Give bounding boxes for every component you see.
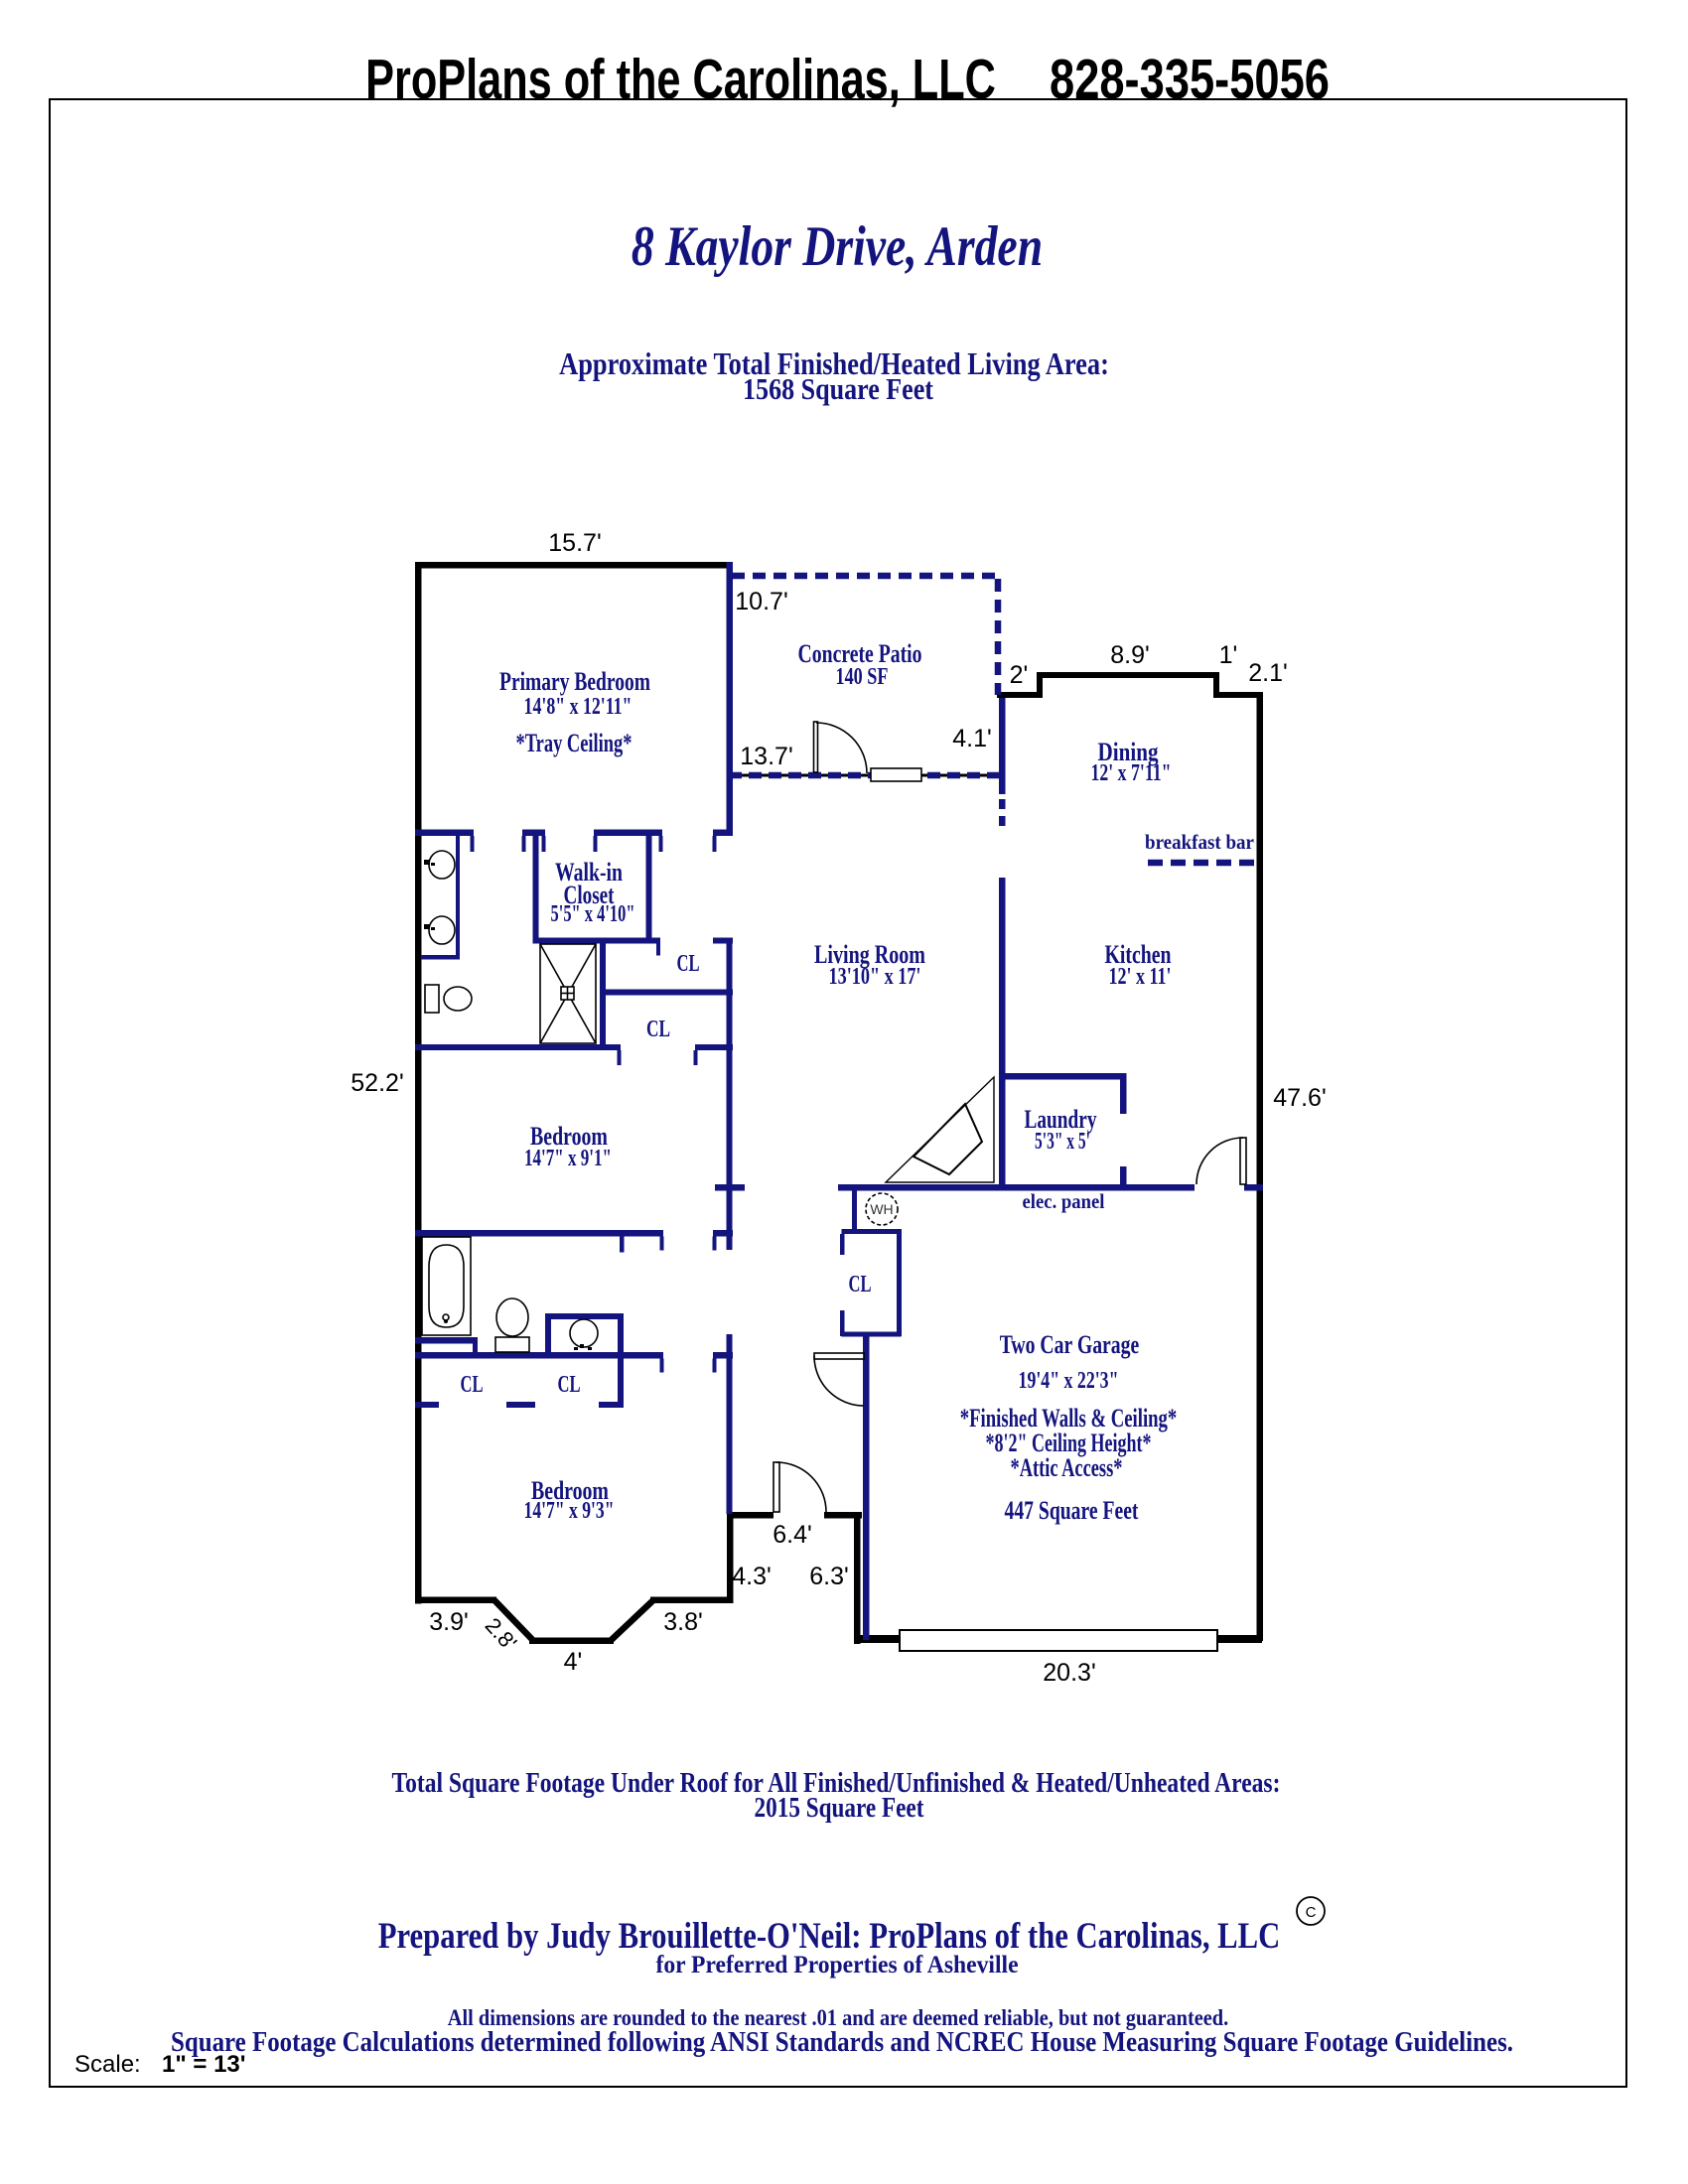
svg-text:52.2': 52.2' (351, 1069, 403, 1097)
svg-text:Scale:: Scale: (74, 2051, 141, 2078)
svg-text:12' x 7'11": 12' x 7'11" (1091, 758, 1172, 785)
svg-text:Two Car Garage: Two Car Garage (1000, 1329, 1140, 1358)
svg-text:Primary Bedroom: Primary Bedroom (499, 667, 650, 695)
svg-text:breakfast bar: breakfast bar (1145, 831, 1254, 854)
svg-text:15.7': 15.7' (548, 529, 601, 557)
svg-text:47.6': 47.6' (1273, 1084, 1326, 1112)
svg-text:10.7': 10.7' (735, 588, 787, 615)
svg-text:8.9': 8.9' (1110, 641, 1150, 669)
svg-text:2.1': 2.1' (1248, 659, 1288, 687)
svg-text:3.8': 3.8' (663, 1608, 703, 1636)
svg-text:for Preferred Properties of As: for Preferred Properties of Asheville (655, 1951, 1018, 1979)
svg-text:1568 Square Feet: 1568 Square Feet (743, 372, 933, 407)
svg-text:2': 2' (1010, 661, 1029, 689)
svg-text:*Tray Ceiling*: *Tray Ceiling* (516, 729, 633, 757)
svg-text:14'7" x 9'3": 14'7" x 9'3" (524, 1496, 615, 1523)
svg-text:CL: CL (848, 1272, 871, 1297)
svg-text:*Attic Access*: *Attic Access* (1011, 1453, 1123, 1482)
svg-text:WH: WH (870, 1201, 893, 1217)
svg-text:13.7': 13.7' (740, 743, 792, 770)
svg-text:12' x 11': 12' x 11' (1109, 963, 1172, 990)
svg-text:Square Footage Calculations de: Square Footage Calculations determined f… (171, 2026, 1513, 2058)
svg-text:14'7" x 9'1": 14'7" x 9'1" (524, 1144, 612, 1171)
svg-text:14'8" x 12'11": 14'8" x 12'11" (524, 692, 633, 719)
svg-text:CL: CL (460, 1372, 483, 1398)
svg-text:4.1': 4.1' (952, 725, 992, 752)
svg-text:13'10" x 17': 13'10" x 17' (829, 963, 921, 990)
svg-text:6.3': 6.3' (809, 1563, 849, 1590)
svg-text:6.4': 6.4' (773, 1521, 812, 1549)
svg-text:1': 1' (1219, 641, 1238, 669)
svg-text:CL: CL (676, 951, 699, 977)
svg-text:4.3': 4.3' (732, 1563, 772, 1590)
svg-text:CL: CL (646, 1015, 670, 1042)
svg-text:447 Square Feet: 447 Square Feet (1005, 1495, 1139, 1524)
svg-text:ProPlans of the Carolinas, LLC: ProPlans of the Carolinas, LLC (365, 47, 996, 110)
svg-text:140 SF: 140 SF (836, 663, 889, 690)
svg-text:5'5" x 4'10": 5'5" x 4'10" (551, 901, 635, 927)
svg-text:1" = 13': 1" = 13' (162, 2051, 245, 2078)
svg-text:19'4" x 22'3": 19'4" x 22'3" (1019, 1366, 1119, 1393)
svg-text:828-335-5056: 828-335-5056 (1050, 47, 1330, 110)
svg-text:C: C (1306, 1904, 1317, 1921)
svg-text:5'3" x 5': 5'3" x 5' (1035, 1129, 1090, 1155)
svg-text:2015 Square Feet: 2015 Square Feet (755, 1792, 924, 1824)
svg-text:4': 4' (564, 1648, 583, 1676)
svg-text:20.3': 20.3' (1043, 1659, 1095, 1687)
svg-text:8 Kaylor Drive, Arden: 8 Kaylor Drive, Arden (632, 215, 1043, 278)
svg-text:3.9': 3.9' (429, 1608, 469, 1636)
svg-text:elec. panel: elec. panel (1023, 1190, 1105, 1213)
svg-text:CL: CL (557, 1372, 580, 1398)
